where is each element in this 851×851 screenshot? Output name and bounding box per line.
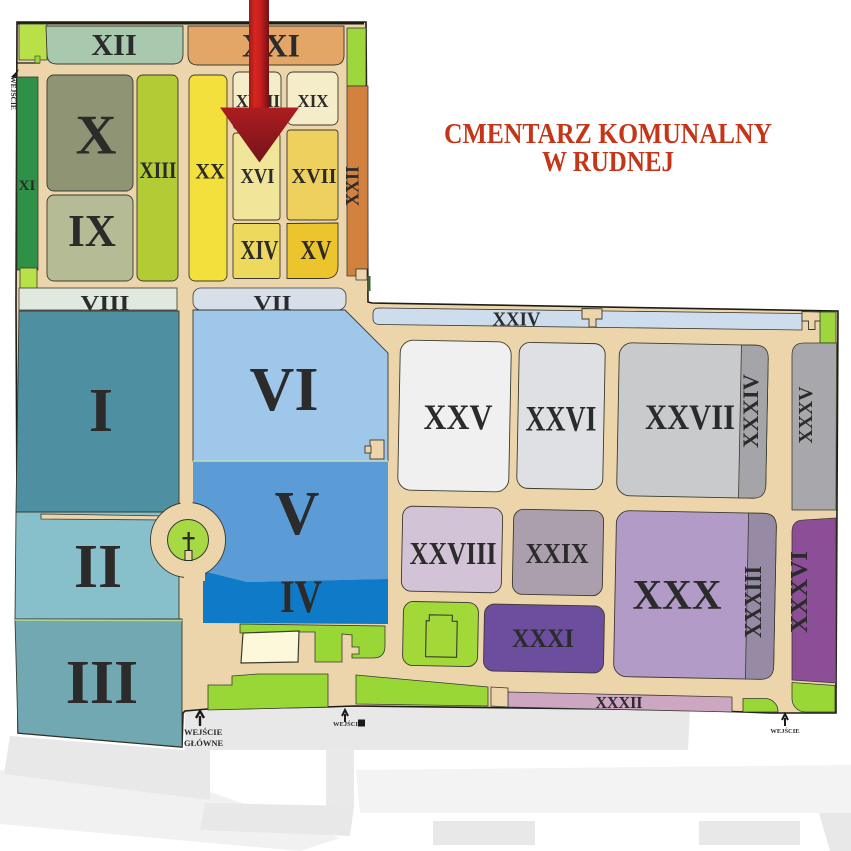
svg-text:WEJŚCIE: WEJŚCIE	[184, 727, 223, 737]
svg-text:IV: IV	[280, 571, 322, 623]
svg-text:WEJŚCIE: WEJŚCIE	[9, 76, 19, 110]
svg-text:II: II	[74, 533, 122, 601]
svg-text:XXXVI: XXXVI	[787, 551, 813, 633]
svg-text:XXIX: XXIX	[526, 539, 589, 570]
svg-text:XVI: XVI	[241, 164, 275, 188]
svg-text:XVII: XVII	[292, 164, 337, 188]
svg-text:XXIV: XXIV	[493, 309, 542, 331]
svg-text:W RUDNEJ: W RUDNEJ	[542, 146, 674, 178]
svg-text:VI: VI	[250, 356, 319, 424]
svg-text:XXX: XXX	[633, 573, 722, 619]
svg-text:XIV: XIV	[241, 235, 279, 265]
svg-text:XXVIII: XXVIII	[410, 535, 497, 571]
svg-text:XXXIII: XXXIII	[741, 566, 767, 638]
svg-text:XXXII: XXXII	[596, 693, 643, 712]
svg-text:XXVII: XXVII	[645, 397, 735, 437]
svg-text:XIII: XIII	[140, 158, 177, 183]
svg-text:XXII: XXII	[344, 166, 364, 206]
svg-text:IX: IX	[68, 205, 116, 256]
svg-text:WEJŚCIE: WEJŚCIE	[770, 727, 799, 735]
svg-text:GŁÓWNE: GŁÓWNE	[184, 738, 224, 748]
svg-text:XI: XI	[19, 178, 36, 194]
svg-text:I: I	[89, 377, 113, 445]
svg-text:XXXIV: XXXIV	[738, 374, 763, 448]
svg-text:III: III	[66, 649, 138, 717]
svg-text:V: V	[275, 480, 320, 548]
svg-text:XXV: XXV	[424, 397, 493, 437]
svg-text:XXVI: XXVI	[526, 399, 597, 439]
svg-text:WEJŚCIE: WEJŚCIE	[333, 720, 362, 728]
svg-text:XII: XII	[91, 27, 137, 62]
svg-text:XV: XV	[301, 235, 332, 265]
svg-text:XX: XX	[195, 159, 225, 184]
svg-text:XIX: XIX	[298, 91, 329, 111]
svg-text:XXXI: XXXI	[512, 624, 574, 653]
svg-text:X: X	[76, 105, 117, 167]
svg-text:XXXV: XXXV	[795, 386, 817, 444]
